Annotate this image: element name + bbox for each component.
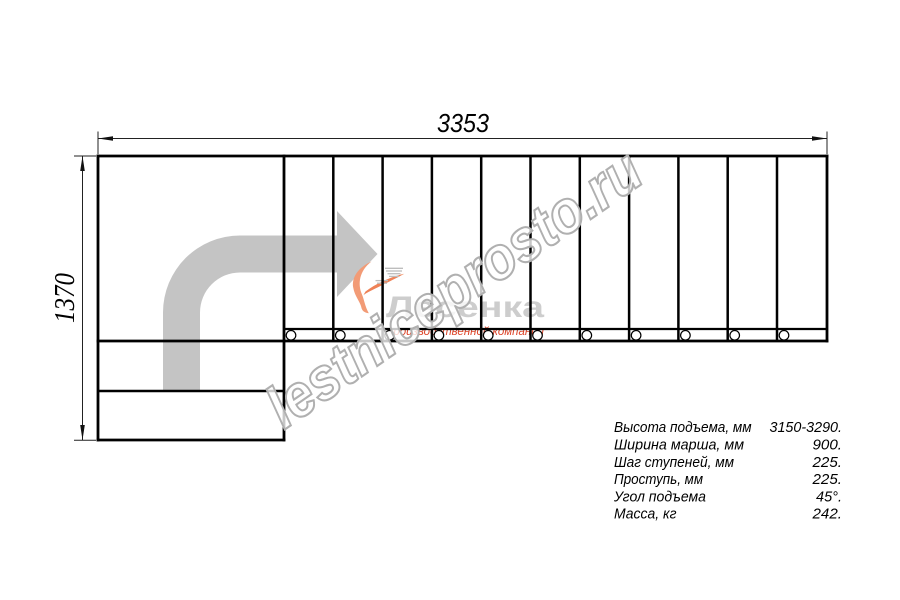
svg-text:Масса, кг: Масса, кг [614, 507, 677, 523]
svg-text:3353: 3353 [437, 108, 489, 138]
svg-text:Шаг ступеней, мм: Шаг ступеней, мм [614, 455, 734, 471]
svg-text:Угол подъема: Угол подъема [613, 489, 706, 505]
svg-text:Проступь, мм: Проступь, мм [614, 472, 703, 488]
svg-text:900.: 900. [813, 438, 843, 454]
svg-text:242.: 242. [811, 507, 842, 523]
svg-text:Ширина марша, мм: Ширина марша, мм [614, 438, 744, 454]
svg-text:225.: 225. [811, 472, 842, 488]
svg-text:45°.: 45°. [816, 489, 842, 505]
svg-text:Высота подъема, мм: Высота подъема, мм [614, 420, 752, 436]
svg-text:225.: 225. [811, 455, 842, 471]
svg-text:1370: 1370 [49, 273, 81, 323]
svg-text:3150-3290.: 3150-3290. [770, 420, 843, 436]
